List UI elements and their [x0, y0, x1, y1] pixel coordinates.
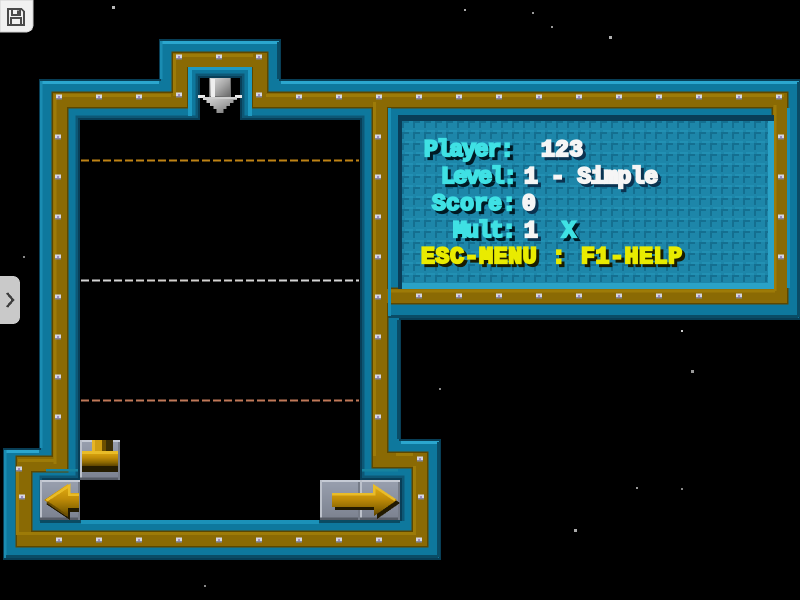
svg-text:1: 1 — [524, 218, 538, 244]
svg-text:Player:: Player: — [424, 137, 514, 163]
svg-text:X: X — [562, 218, 576, 244]
svg-text:Score:: Score: — [432, 191, 516, 217]
svg-text:Mult:: Mult: — [453, 218, 516, 244]
svg-text:0: 0 — [522, 191, 536, 217]
svg-text:1 - Simple: 1 - Simple — [524, 164, 658, 190]
svg-text:Level:: Level: — [441, 164, 517, 190]
svg-text:ESC-MENU : F1-HELP: ESC-MENU : F1-HELP — [421, 244, 682, 270]
svg-text:123: 123 — [541, 137, 583, 163]
